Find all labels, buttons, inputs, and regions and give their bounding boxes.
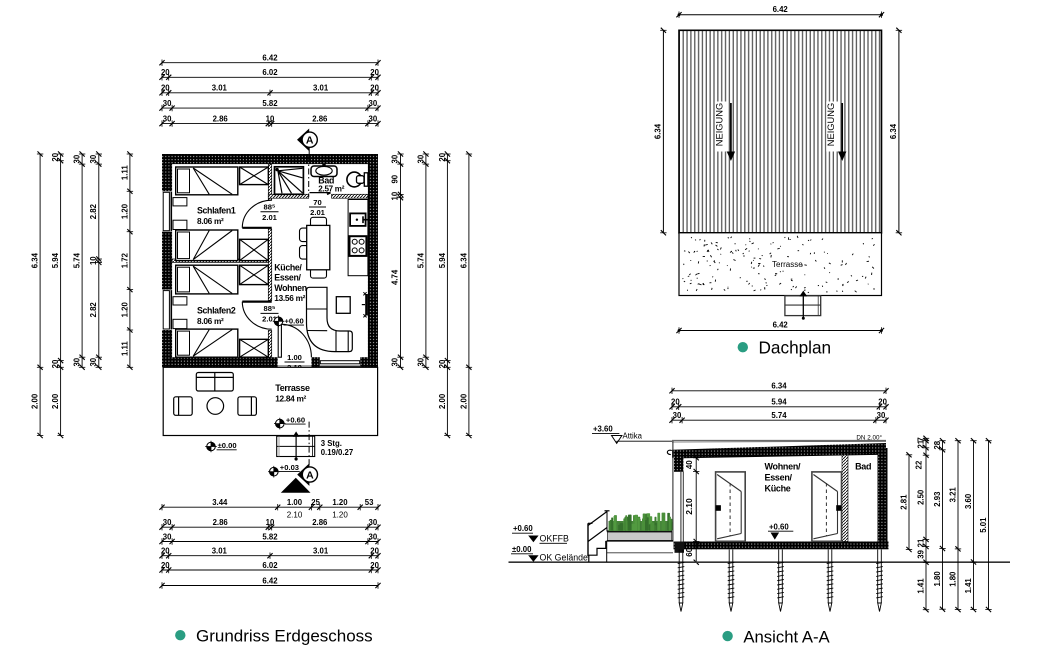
svg-text:20: 20: [161, 84, 170, 93]
svg-text:30: 30: [369, 114, 378, 123]
svg-text:+0.60: +0.60: [513, 524, 533, 533]
svg-text:6.02: 6.02: [262, 561, 278, 570]
svg-text:1.80: 1.80: [948, 571, 957, 587]
svg-text:A: A: [306, 135, 314, 147]
svg-text:2.86: 2.86: [312, 518, 328, 527]
svg-text:30: 30: [369, 99, 378, 108]
svg-text:2.82: 2.82: [89, 203, 98, 219]
svg-text:3 Stg.: 3 Stg.: [321, 439, 342, 448]
svg-text:5.94: 5.94: [771, 398, 787, 407]
svg-text:20: 20: [51, 152, 60, 161]
svg-text:6.42: 6.42: [262, 54, 278, 63]
svg-text:10: 10: [89, 256, 98, 265]
svg-text:1.20: 1.20: [120, 203, 129, 219]
svg-text:30: 30: [369, 518, 378, 527]
svg-text:DN 2.00°: DN 2.00°: [856, 434, 882, 442]
svg-text:20: 20: [161, 68, 170, 77]
svg-text:Terrasse: Terrasse: [772, 260, 803, 269]
svg-text:30: 30: [163, 99, 172, 108]
svg-text:A: A: [306, 469, 314, 481]
svg-text:5.82: 5.82: [262, 99, 278, 108]
svg-text:1.20: 1.20: [120, 302, 129, 318]
svg-text:30: 30: [877, 411, 886, 420]
svg-text:20: 20: [370, 547, 379, 556]
svg-text:2.57 m²: 2.57 m²: [318, 185, 344, 194]
svg-text:10: 10: [266, 518, 275, 527]
svg-text:90: 90: [391, 174, 400, 183]
svg-text:2.01: 2.01: [262, 213, 278, 222]
svg-text:2.00: 2.00: [438, 393, 447, 409]
svg-text:5.74: 5.74: [416, 252, 425, 268]
svg-text:70: 70: [313, 198, 321, 207]
svg-text:13.56 m²: 13.56 m²: [274, 293, 305, 303]
svg-text:28: 28: [933, 440, 942, 449]
svg-text:30: 30: [89, 154, 98, 163]
svg-text:22: 22: [915, 460, 924, 469]
svg-text:20: 20: [438, 359, 447, 368]
svg-text:5.82: 5.82: [262, 532, 278, 541]
svg-text:3.21: 3.21: [948, 487, 957, 503]
svg-text:21: 21: [916, 538, 925, 547]
svg-text:2.82: 2.82: [89, 302, 98, 318]
svg-text:12.84 m²: 12.84 m²: [275, 394, 306, 404]
svg-text:2.86: 2.86: [213, 114, 229, 123]
svg-text:3.60: 3.60: [964, 493, 973, 509]
svg-text:Schlafen1: Schlafen1: [197, 206, 236, 216]
svg-text:6.34: 6.34: [459, 252, 468, 268]
svg-text:Küche/: Küche/: [274, 262, 302, 272]
svg-text:5.94: 5.94: [51, 252, 60, 268]
svg-text:6.02: 6.02: [262, 68, 278, 77]
svg-text:20: 20: [438, 152, 447, 161]
svg-text:3.01: 3.01: [313, 84, 329, 93]
svg-text:1.20: 1.20: [332, 511, 348, 520]
svg-text:2.93: 2.93: [933, 491, 942, 507]
svg-text:40: 40: [685, 460, 694, 469]
svg-text:30: 30: [369, 532, 378, 541]
svg-text:30: 30: [391, 154, 400, 163]
svg-text:6.34: 6.34: [31, 252, 40, 268]
svg-text:53: 53: [365, 498, 374, 507]
svg-text:1.80: 1.80: [933, 571, 942, 587]
svg-text:6.34: 6.34: [771, 382, 787, 391]
svg-text:5.74: 5.74: [73, 252, 82, 268]
svg-text:1.20: 1.20: [332, 498, 348, 507]
svg-text:2.00: 2.00: [31, 393, 40, 409]
svg-text:30: 30: [163, 518, 172, 527]
svg-text:6.42: 6.42: [773, 5, 789, 14]
svg-text:6.42: 6.42: [773, 321, 789, 330]
svg-text:5.74: 5.74: [771, 411, 787, 420]
svg-text:OKFFB: OKFFB: [540, 533, 569, 543]
svg-text:21: 21: [916, 439, 925, 448]
svg-text:±0.00: ±0.00: [512, 545, 532, 554]
svg-text:60: 60: [685, 547, 694, 556]
svg-text:25: 25: [311, 498, 320, 507]
svg-text:Essen/: Essen/: [274, 273, 301, 283]
svg-text:20: 20: [51, 359, 60, 368]
svg-text:39: 39: [916, 549, 925, 558]
svg-text:2.00: 2.00: [51, 393, 60, 409]
svg-text:NEIGUNG: NEIGUNG: [715, 103, 725, 146]
svg-text:20: 20: [671, 398, 680, 407]
svg-text:20: 20: [878, 398, 887, 407]
svg-text:2.00: 2.00: [459, 393, 468, 409]
svg-text:30: 30: [416, 357, 425, 366]
svg-text:2.10: 2.10: [287, 511, 303, 520]
svg-text:6.34: 6.34: [653, 123, 662, 139]
svg-text:Wohnen: Wohnen: [274, 283, 306, 293]
svg-text:6.42: 6.42: [262, 576, 278, 585]
svg-text:2.10: 2.10: [684, 498, 694, 515]
svg-text:1.41: 1.41: [916, 578, 925, 594]
svg-text:3.01: 3.01: [313, 547, 329, 556]
svg-text:3.44: 3.44: [212, 498, 228, 507]
svg-text:NEIGUNG: NEIGUNG: [826, 103, 836, 146]
svg-text:30: 30: [73, 154, 82, 163]
svg-text:0.19/0.27: 0.19/0.27: [321, 448, 354, 457]
svg-text:Wohnen/: Wohnen/: [765, 462, 802, 472]
svg-text:1.72: 1.72: [120, 252, 129, 268]
svg-text:1.41: 1.41: [964, 578, 973, 594]
svg-text:Küche: Küche: [765, 484, 791, 494]
svg-text:2.81: 2.81: [899, 494, 908, 510]
svg-text:+0.60: +0.60: [769, 522, 789, 531]
svg-text:30: 30: [163, 114, 172, 123]
svg-text:Bad: Bad: [855, 462, 871, 472]
svg-text:10: 10: [266, 114, 275, 123]
svg-text:4.74: 4.74: [391, 269, 400, 285]
svg-text:+0.60: +0.60: [285, 316, 304, 325]
svg-text:+0.60: +0.60: [286, 415, 305, 424]
svg-text:Grundriss Erdgeschoss: Grundriss Erdgeschoss: [196, 627, 373, 646]
svg-text:30: 30: [163, 532, 172, 541]
svg-text:30: 30: [673, 411, 682, 420]
svg-text:8.06 m²: 8.06 m²: [197, 216, 224, 226]
svg-text:Attika: Attika: [623, 431, 643, 440]
svg-text:20: 20: [161, 547, 170, 556]
svg-text:88⁵: 88⁵: [263, 304, 275, 313]
svg-text:1.11: 1.11: [120, 165, 129, 180]
svg-text:6.34: 6.34: [889, 123, 898, 139]
svg-text:2.01: 2.01: [310, 208, 326, 217]
svg-text:Terrasse: Terrasse: [275, 383, 310, 393]
svg-text:2.86: 2.86: [213, 518, 229, 527]
svg-text:2.86: 2.86: [312, 114, 328, 123]
svg-text:30: 30: [416, 154, 425, 163]
svg-text:OK Gelände: OK Gelände: [540, 552, 589, 562]
svg-text:3.01: 3.01: [212, 84, 228, 93]
svg-text:8.06 m²: 8.06 m²: [197, 316, 224, 326]
svg-text:Essen/: Essen/: [765, 473, 793, 483]
svg-text:+3.60: +3.60: [593, 425, 613, 434]
svg-text:3.01: 3.01: [212, 547, 228, 556]
svg-text:5.01: 5.01: [979, 517, 988, 533]
svg-text:30: 30: [391, 357, 400, 366]
svg-text:Ansicht A-A: Ansicht A-A: [743, 627, 830, 646]
svg-text:Dachplan: Dachplan: [759, 338, 832, 358]
svg-text:1.00: 1.00: [287, 353, 302, 362]
svg-text:Schlafen2: Schlafen2: [197, 306, 236, 316]
svg-text:20: 20: [370, 561, 379, 570]
svg-text:5.94: 5.94: [438, 252, 447, 268]
svg-text:20: 20: [370, 84, 379, 93]
svg-text:1.00: 1.00: [287, 498, 303, 507]
svg-text:30: 30: [89, 357, 98, 366]
svg-text:20: 20: [370, 68, 379, 77]
svg-text:10: 10: [391, 191, 400, 200]
svg-text:±0.00: ±0.00: [218, 441, 237, 450]
svg-text:+0.03: +0.03: [280, 463, 299, 472]
svg-text:1.11: 1.11: [120, 341, 129, 356]
svg-text:20: 20: [161, 561, 170, 570]
svg-text:30: 30: [73, 357, 82, 366]
svg-text:2.50: 2.50: [916, 489, 925, 505]
svg-text:88⁵: 88⁵: [263, 203, 275, 212]
